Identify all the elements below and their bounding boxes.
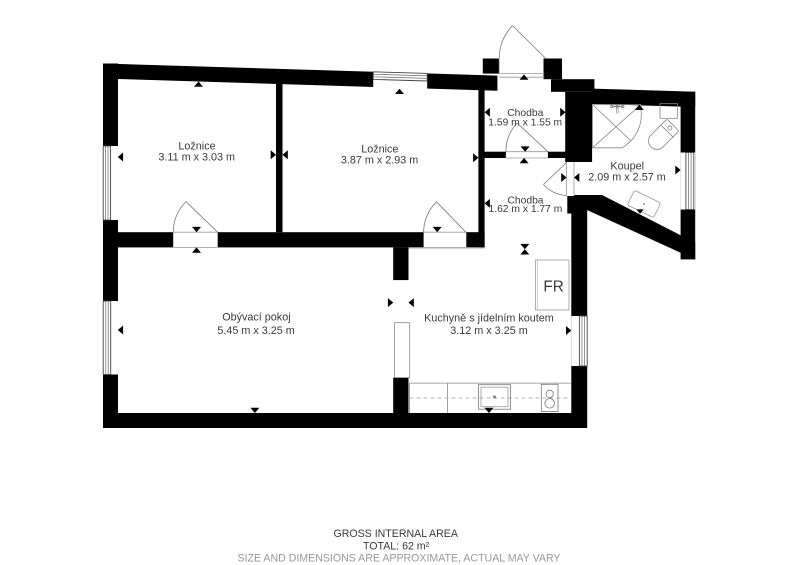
svg-text:TOTAL: 62 m²: TOTAL: 62 m² <box>363 541 430 553</box>
svg-text:SIZE AND DIMENSIONS ARE APPROX: SIZE AND DIMENSIONS ARE APPROXIMATE, ACT… <box>238 552 561 564</box>
svg-text:3.87 m x 2.93 m: 3.87 m x 2.93 m <box>341 155 418 167</box>
svg-text:GROSS INTERNAL AREA: GROSS INTERNAL AREA <box>333 528 458 540</box>
svg-text:3.11 m x 3.03 m: 3.11 m x 3.03 m <box>158 151 235 163</box>
svg-text:5.45 m x 3.25 m: 5.45 m x 3.25 m <box>217 325 294 337</box>
svg-text:3.12 m x 3.25 m: 3.12 m x 3.25 m <box>450 325 527 337</box>
svg-text:1.59 m x 1.55 m: 1.59 m x 1.55 m <box>488 117 562 128</box>
svg-text:Obývací pokoj: Obývací pokoj <box>222 312 290 324</box>
svg-text:2.09 m x 2.57 m: 2.09 m x 2.57 m <box>588 171 665 183</box>
svg-text:FR: FR <box>543 278 563 295</box>
svg-text:Kuchyně s jídelním koutem: Kuchyně s jídelním koutem <box>424 312 554 324</box>
svg-text:1.62 m x 1.77 m: 1.62 m x 1.77 m <box>488 204 562 215</box>
